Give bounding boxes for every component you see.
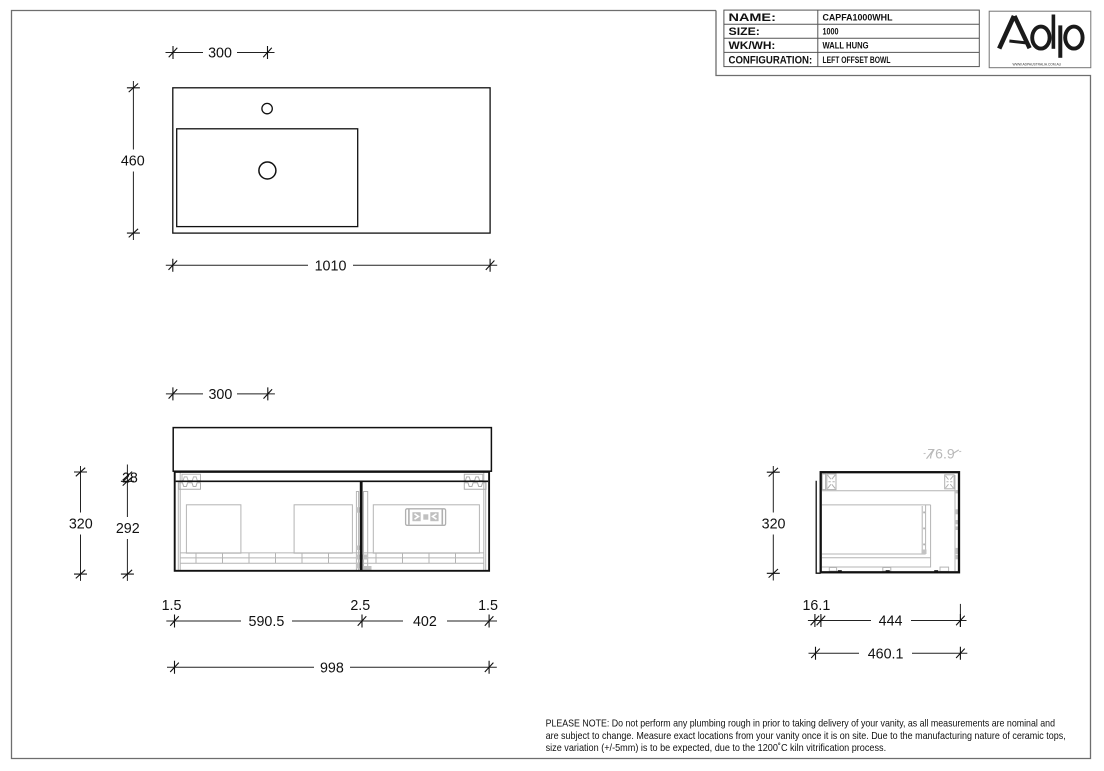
svg-text:402: 402 bbox=[413, 614, 437, 630]
svg-text:2.5: 2.5 bbox=[350, 598, 370, 614]
svg-text:1.5: 1.5 bbox=[478, 598, 498, 614]
svg-text:16.1: 16.1 bbox=[802, 598, 830, 614]
svg-text:1010: 1010 bbox=[315, 258, 347, 274]
svg-text:76.9: 76.9 bbox=[927, 445, 954, 461]
svg-text:300: 300 bbox=[208, 387, 232, 403]
svg-text:320: 320 bbox=[762, 517, 786, 533]
svg-text:size variation (+/-5mm) is to: size variation (+/-5mm) is to be expecte… bbox=[546, 742, 887, 754]
svg-text:WK/WH:: WK/WH: bbox=[729, 40, 776, 52]
svg-text:300: 300 bbox=[208, 46, 232, 62]
svg-text:NAME:: NAME: bbox=[729, 12, 776, 24]
svg-text:28: 28 bbox=[122, 471, 138, 487]
svg-text:590.5: 590.5 bbox=[249, 614, 285, 630]
svg-text:are subject to change. Measure: are subject to change. Measure exact loc… bbox=[546, 731, 1066, 742]
svg-text:WWW.ADPAUSTRALIA.COM.AU: WWW.ADPAUSTRALIA.COM.AU bbox=[1013, 63, 1062, 67]
svg-text:1.5: 1.5 bbox=[162, 598, 182, 614]
svg-text:1000: 1000 bbox=[823, 27, 839, 37]
svg-text:WALL HUNG: WALL HUNG bbox=[823, 41, 869, 51]
svg-text:320: 320 bbox=[69, 517, 93, 533]
svg-text:444: 444 bbox=[879, 614, 903, 630]
svg-text:460: 460 bbox=[121, 154, 145, 170]
svg-text:LEFT OFFSET BOWL: LEFT OFFSET BOWL bbox=[823, 55, 891, 65]
svg-text:460.1: 460.1 bbox=[868, 646, 904, 662]
svg-text:PLEASE NOTE: Do not perform an: PLEASE NOTE: Do not perform any plumbing… bbox=[546, 719, 1056, 730]
svg-text:SIZE:: SIZE: bbox=[729, 26, 760, 38]
svg-text:CONFIGURATION:: CONFIGURATION: bbox=[729, 54, 813, 66]
svg-text:292: 292 bbox=[116, 521, 140, 537]
svg-text:CAPFA1000WHL: CAPFA1000WHL bbox=[823, 13, 894, 23]
svg-text:998: 998 bbox=[320, 660, 344, 676]
